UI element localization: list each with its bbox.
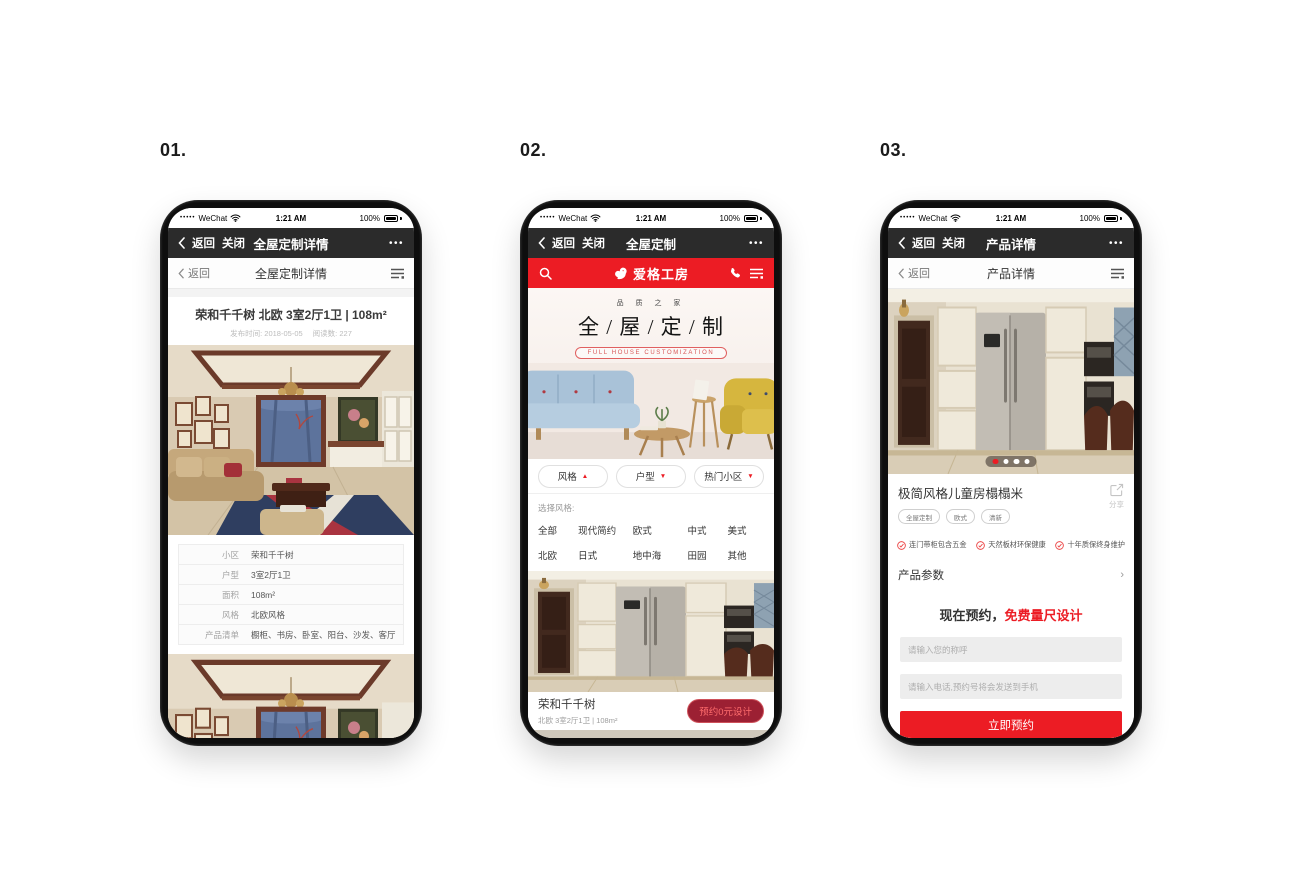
share-button[interactable]: 分享: [1109, 483, 1124, 524]
style-option[interactable]: 地中海: [633, 548, 688, 562]
carousel-dot[interactable]: [1024, 459, 1030, 465]
product-params-row[interactable]: 产品参数 ›: [888, 558, 1134, 592]
battery-percent: 100%: [1080, 214, 1100, 223]
signal-dots-icon: •••••: [540, 215, 556, 221]
app-header: 爱格工房: [528, 258, 774, 288]
product-title: 极简风格儿童房榻榻米: [898, 483, 1023, 502]
page-back-button[interactable]: 返回: [178, 265, 210, 281]
feature-item: 十年质保终身维护: [1055, 540, 1125, 550]
menu-list-button[interactable]: [1111, 268, 1124, 279]
table-row: 小区荣和千千树: [179, 545, 403, 565]
wechat-close-button[interactable]: 关闭: [582, 235, 605, 251]
page-back-button[interactable]: 返回: [898, 265, 930, 281]
phone-1: ••••• WeChat 1:21 AM 100% 返回 关闭 全屋定制详情 •…: [160, 200, 422, 746]
brand-name: 爱格工房: [633, 264, 689, 283]
wechat-back-button[interactable]: 返回: [192, 235, 215, 251]
name-input[interactable]: [900, 637, 1122, 662]
article-title: 荣和千千树 北欧 3室2厅1卫 | 108m²: [178, 306, 404, 323]
status-bar: ••••• WeChat 1:21 AM 100%: [528, 208, 774, 228]
back-chevron-icon: [538, 237, 545, 249]
hero-badge: FULL HOUSE CUSTOMIZATION: [575, 347, 728, 359]
arrow-up-icon: ▲: [582, 473, 588, 480]
carousel-dots[interactable]: [986, 456, 1037, 468]
page-navbar: 返回 全屋定制详情: [168, 258, 414, 289]
back-chevron-icon: [178, 268, 184, 279]
phone-call-icon[interactable]: [729, 267, 741, 279]
more-options-button[interactable]: •••: [749, 238, 764, 249]
share-label: 分享: [1109, 500, 1124, 509]
hero-banner: 品 质 之 家 全 / 屋 / 定 / 制 FULL HOUSE CUSTOMI…: [528, 288, 774, 459]
back-chevron-icon: [178, 237, 185, 249]
chevron-right-icon: ›: [1120, 569, 1124, 581]
carrier-label: WeChat: [199, 214, 228, 223]
list-menu-icon[interactable]: [750, 268, 763, 279]
wechat-navbar: 返回 关闭 全屋定制详情 •••: [168, 228, 414, 258]
design-canvas: 01. 02. 03. ••••• WeChat 1:21 AM 100%: [0, 0, 1300, 892]
battery-icon: [744, 215, 758, 222]
check-circle-icon: [1055, 541, 1064, 550]
phone-2: ••••• WeChat 1:21 AM 100% 返回 关闭 全屋定制 •••: [520, 200, 782, 746]
carrier-label: WeChat: [919, 214, 948, 223]
hero-tagline: 品 质 之 家: [528, 288, 774, 308]
living-room-photo-2: [168, 654, 414, 738]
book-now-button[interactable]: 立即预约: [900, 711, 1122, 738]
battery-percent: 100%: [360, 214, 380, 223]
wechat-close-button[interactable]: 关闭: [222, 235, 245, 251]
feature-list: 连门带柜包含五金 天然板材环保健康 十年质保终身维护: [888, 532, 1134, 558]
wifi-icon: [590, 214, 601, 222]
list-menu-icon: [391, 268, 404, 279]
more-options-button[interactable]: •••: [389, 238, 404, 249]
page-navbar: 返回 产品详情: [888, 258, 1134, 289]
listing-spec: 北欧 3室2厅1卫 | 108m²: [538, 715, 617, 726]
phone-1-screen: ••••• WeChat 1:21 AM 100% 返回 关闭 全屋定制详情 •…: [168, 208, 414, 738]
booking-heading-highlight: 免费量尺设计: [1005, 608, 1083, 623]
battery-percent: 100%: [720, 214, 740, 223]
style-option[interactable]: 美式: [728, 523, 764, 537]
product-tag[interactable]: 全屋定制: [898, 509, 940, 524]
status-bar: ••••• WeChat 1:21 AM 100%: [888, 208, 1134, 228]
product-photo-carousel[interactable]: [888, 289, 1134, 474]
wechat-back-button[interactable]: 返回: [912, 235, 935, 251]
style-option[interactable]: 田园: [687, 548, 727, 562]
product-params-label: 产品参数: [898, 567, 944, 583]
battery-icon: [384, 215, 398, 222]
article-header: 荣和千千树 北欧 3室2厅1卫 | 108m² 发布时间: 2018-05-05…: [168, 297, 414, 345]
style-option[interactable]: 中式: [687, 523, 727, 537]
table-row: 风格北欧风格: [179, 605, 403, 625]
wifi-icon: [950, 214, 961, 222]
phone-3: ••••• WeChat 1:21 AM 100% 返回 关闭 产品详情 •••: [880, 200, 1142, 746]
next-card-photo-edge: [528, 730, 774, 738]
wifi-icon: [230, 214, 241, 222]
wechat-close-button[interactable]: 关闭: [942, 235, 965, 251]
style-option[interactable]: 日式: [578, 548, 633, 562]
back-chevron-icon: [898, 268, 904, 279]
filter-style-button[interactable]: 风格▲: [538, 465, 608, 488]
style-option[interactable]: 北欧: [538, 548, 578, 562]
info-table: 小区荣和千千树 户型3室2厅1卫 面积108m² 风格北欧风格 产品清单橱柜、书…: [178, 544, 404, 645]
table-row: 产品清单橱柜、书房、卧室、阳台、沙发、客厅: [179, 625, 403, 644]
carousel-dot[interactable]: [1003, 459, 1009, 465]
menu-list-button[interactable]: [391, 268, 404, 279]
page-back-label: 返回: [908, 265, 930, 281]
style-option[interactable]: 现代简约: [578, 523, 633, 537]
product-tag[interactable]: 清新: [981, 509, 1010, 524]
signal-dots-icon: •••••: [180, 215, 196, 221]
arrow-down-icon: ▼: [660, 473, 666, 480]
publish-date: 发布时间: 2018-05-05: [230, 328, 303, 339]
phone-3-screen: ••••• WeChat 1:21 AM 100% 返回 关闭 产品详情 •••: [888, 208, 1134, 738]
wechat-navbar: 返回 关闭 产品详情 •••: [888, 228, 1134, 258]
phone-3-label: 03.: [880, 140, 907, 161]
phone-2-screen: ••••• WeChat 1:21 AM 100% 返回 关闭 全屋定制 •••: [528, 208, 774, 738]
arrow-down-icon: ▼: [747, 473, 753, 480]
product-tag[interactable]: 欧式: [946, 509, 975, 524]
listing-kitchen-photo[interactable]: [528, 571, 774, 692]
carousel-dot[interactable]: [1014, 459, 1020, 465]
filter-bar: 风格▲ 户型▼ 热门小区▼: [528, 459, 774, 494]
back-chevron-icon: [898, 237, 905, 249]
squirrel-logo-icon: [613, 266, 628, 281]
style-option[interactable]: 其他: [728, 548, 764, 562]
sofa-scene-photo: [528, 363, 774, 459]
carousel-dot-active[interactable]: [993, 459, 999, 465]
check-circle-icon: [897, 541, 906, 550]
living-room-photo: [168, 345, 414, 535]
feature-item: 连门带柜包含五金: [897, 540, 967, 550]
read-count: 阅读数: 227: [313, 328, 352, 339]
signal-dots-icon: •••••: [900, 215, 916, 221]
list-menu-icon: [1111, 268, 1124, 279]
table-row: 户型3室2厅1卫: [179, 565, 403, 585]
listing-card[interactable]: 荣和千千树 北欧 3室2厅1卫 | 108m² 预约0元设计: [528, 692, 774, 730]
phone-input[interactable]: [900, 674, 1122, 699]
battery-icon: [1104, 215, 1118, 222]
check-circle-icon: [976, 541, 985, 550]
status-bar: ••••• WeChat 1:21 AM 100%: [168, 208, 414, 228]
style-picker-label: 选择风格:: [538, 502, 764, 514]
wechat-back-button[interactable]: 返回: [552, 235, 575, 251]
style-picker: 选择风格: 全部 现代简约 欧式 中式 美式 北欧 日式 地中海 田园 其他: [528, 494, 774, 571]
booking-heading: 现在预约，免费量尺设计: [900, 605, 1122, 624]
phone-1-label: 01.: [160, 140, 187, 161]
page-back-label: 返回: [188, 265, 210, 281]
product-header: 极简风格儿童房榻榻米 全屋定制 欧式 清新 分享: [888, 474, 1134, 532]
book-free-design-button[interactable]: 预约0元设计: [687, 699, 764, 723]
more-options-button[interactable]: •••: [1109, 238, 1124, 249]
style-option[interactable]: 欧式: [633, 523, 688, 537]
hero-title: 全 / 屋 / 定 / 制: [528, 311, 774, 341]
filter-community-button[interactable]: 热门小区▼: [694, 465, 764, 488]
wechat-navbar: 返回 关闭 全屋定制 •••: [528, 228, 774, 258]
filter-layout-button[interactable]: 户型▼: [616, 465, 686, 488]
booking-form: 现在预约，免费量尺设计 立即预约: [888, 592, 1134, 738]
phone-2-label: 02.: [520, 140, 547, 161]
feature-item: 天然板材环保健康: [976, 540, 1046, 550]
table-row: 面积108m²: [179, 585, 403, 605]
share-icon: [1109, 483, 1124, 497]
section-divider: [168, 289, 414, 297]
style-option[interactable]: 全部: [538, 523, 578, 537]
carrier-label: WeChat: [559, 214, 588, 223]
listing-name: 荣和千千树: [538, 696, 617, 712]
